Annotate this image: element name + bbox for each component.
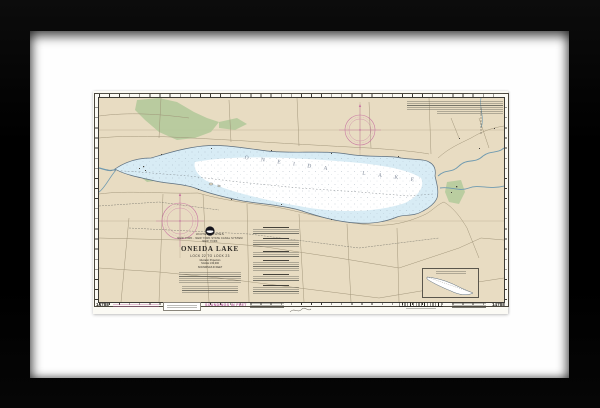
note-block	[253, 238, 299, 248]
soundings-line: SOUNDINGS IN FEET	[160, 266, 260, 269]
scale-line: SCALE 1:60,000	[160, 262, 260, 265]
note-block	[253, 274, 299, 282]
logarithmic-speed-scale	[399, 302, 443, 310]
note-block	[253, 260, 299, 271]
top-right-notes-2	[437, 111, 503, 114]
margin-note-top-right	[468, 93, 503, 95]
chart-title: ONEIDA LAKE	[160, 245, 260, 254]
soundings-dots	[115, 145, 438, 223]
note-block	[253, 285, 299, 294]
edition-note-magenta	[113, 304, 159, 309]
notes-column	[253, 227, 299, 297]
agency-line-3: NEW YORK	[160, 240, 260, 243]
soundings-note: SOUNDINGS IN FEET	[205, 303, 247, 307]
publisher-note	[250, 303, 284, 309]
note-block	[253, 251, 299, 258]
bottom-flourish	[288, 302, 312, 320]
corrections-box	[163, 302, 201, 311]
inset-map	[422, 268, 479, 298]
margin-note-top-left	[98, 93, 138, 95]
compass-rose-north	[339, 104, 381, 150]
inset-water-shape	[427, 277, 473, 295]
framed-chart-product-image: ONEIDA LAKE UNITED STATES NEW YORK - NEW…	[0, 0, 600, 408]
chart-subtitle: LOCK 22 TO LOCK 23	[160, 254, 260, 258]
title-block-notes-1	[179, 272, 241, 283]
top-right-notes	[407, 101, 503, 110]
corrections-box-text	[167, 305, 197, 308]
chart-number-right: 14788	[492, 302, 505, 307]
chart-number-left: 14788	[96, 302, 109, 307]
note-block	[253, 227, 299, 235]
print-note	[452, 303, 486, 308]
inset-title	[436, 271, 466, 274]
title-block: UNITED STATES NEW YORK - NEW YORK STATE …	[160, 233, 260, 294]
title-block-notes-2	[182, 286, 238, 294]
projection-line: Mercator Projection	[160, 259, 260, 262]
